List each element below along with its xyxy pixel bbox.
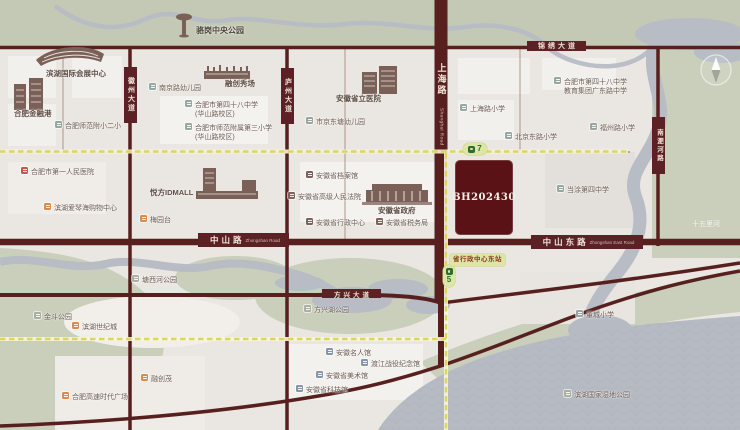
poi-label: 十五里河 xyxy=(692,220,720,229)
poi-label: 合肥市师范附属第三小学(华山路校区) xyxy=(195,124,272,142)
poi-label: 梅园台 xyxy=(150,216,171,225)
poi-fuzhou-rd-primary: 福州路小学 xyxy=(590,124,635,133)
road-name-en: Zhongshan Road xyxy=(245,238,280,243)
poi-label: 金斗公园 xyxy=(44,313,72,322)
museum-icon xyxy=(296,385,303,392)
poi-label: 悦方IDMALL xyxy=(150,188,193,198)
poi-no48-guangdong: 合肥市第四十八中学教育集团广东路中学 xyxy=(554,78,627,96)
road-label-shanghai-en: Shanghai Road xyxy=(436,102,446,152)
road-label-zhongshan-east: 中山东路 Zhongshan East Road xyxy=(531,235,643,249)
metro-logo-icon xyxy=(468,146,475,153)
school-icon xyxy=(185,100,192,107)
metro-logo-icon xyxy=(446,268,453,275)
gov-icon xyxy=(376,218,383,225)
poi-label: 塘西河公园 xyxy=(142,276,177,285)
metro-line7-badge: 7 xyxy=(463,143,487,155)
school-icon xyxy=(306,117,313,124)
park-icon xyxy=(304,305,311,312)
poi-finance-port: 合肥金融港 xyxy=(14,109,52,119)
metro-station-label: 省行政中心东站 xyxy=(450,254,505,266)
shop-icon xyxy=(140,215,147,222)
poi-label: 合肥市第一人民医院 xyxy=(31,168,94,177)
museum-icon xyxy=(361,359,368,366)
poi-rongchuang-show: 融创秀场 xyxy=(225,79,255,89)
map-canvas: 骆岗中央公园滨湖国际会展中心合肥金融港融创秀场南京路幼儿园合肥市第四十八中学(华… xyxy=(0,0,740,430)
road-name-zh: 中山东路 xyxy=(540,236,589,248)
school-icon xyxy=(55,121,62,128)
poi-fangxinghu-park: 方兴湖公园 xyxy=(304,306,349,315)
poi-celebrity-museum: 安徽名人馆 xyxy=(326,349,371,358)
poi-label: 合肥市第四十八中学教育集团广东路中学 xyxy=(564,78,627,96)
poi-prov-admin-center: 安徽省行政中心 xyxy=(306,219,365,228)
road-label-jinxiu: 锦绣大道 xyxy=(527,41,586,51)
poi-shifan-no3-primary: 合肥市师范附属第三小学(华山路校区) xyxy=(185,124,272,142)
poi-first-people-hospital: 合肥市第一人民医院 xyxy=(21,168,94,177)
poi-convention-center: 滨湖国际会展中心 xyxy=(46,69,106,79)
poi-label: 当涂第四中学 xyxy=(567,186,609,195)
poi-prov-government: 安徽省政府 xyxy=(378,206,416,216)
poi-label: 滨湖国家湿地公园 xyxy=(574,391,630,400)
poi-meiyuantai: 梅园台 xyxy=(140,216,171,225)
road-label-huizhou: 徽州大道 xyxy=(124,67,137,123)
poi-luogang-park: 骆岗中央公园 xyxy=(196,26,244,36)
poi-label: 安徽省行政中心 xyxy=(316,219,365,228)
poi-shifan-fuxiao-2: 合肥师范附小二小 xyxy=(55,122,121,131)
poi-label: 方兴湖公园 xyxy=(314,306,349,315)
school-icon xyxy=(554,77,561,84)
road-label-shanghai-zh: 上海路 xyxy=(433,56,449,102)
poi-label: 滨湖国际会展中心 xyxy=(46,69,106,79)
poi-shijicheng: 滨湖世纪城 xyxy=(72,323,117,332)
poi-label: 北京东路小学 xyxy=(515,133,557,142)
poi-label: 董城小学 xyxy=(586,311,614,320)
poi-label: 安徽名人馆 xyxy=(336,349,371,358)
road-name: 锦绣大道 xyxy=(535,41,578,51)
compass-icon xyxy=(701,55,731,85)
poi-jindou-park: 金斗公园 xyxy=(34,313,72,322)
poi-dujiang-memorial: 渡江战役纪念馆 xyxy=(361,360,420,369)
road-label-luzhou: 庐州大道 xyxy=(281,68,294,124)
school-icon xyxy=(505,132,512,139)
poi-art-museum: 安徽省美术馆 xyxy=(316,372,368,381)
poi-label: 融创茂 xyxy=(151,375,172,384)
poi-label: 安徽省高级人民法院 xyxy=(298,193,361,202)
gov-icon xyxy=(306,171,313,178)
road-name-en: Zhongshan East Road xyxy=(590,240,635,245)
poi-gaosu-times-plaza: 合肥高速时代广场 xyxy=(62,393,128,402)
hospital-icon xyxy=(21,167,28,174)
poi-label: 合肥金融港 xyxy=(14,109,52,119)
road-label-zhongshan: 中山路 Zhongshan Road xyxy=(198,233,289,247)
school-icon xyxy=(576,310,583,317)
poi-label: 安徽省立医院 xyxy=(336,94,381,104)
poi-prov-high-court: 安徽省高级人民法院 xyxy=(288,193,361,202)
metro-line-number: 7 xyxy=(477,145,481,153)
poi-beijing-rd-primary: 北京东路小学 xyxy=(505,133,557,142)
school-icon xyxy=(460,104,467,111)
poi-prov-archives: 安徽省档案馆 xyxy=(306,172,358,181)
gov-icon xyxy=(306,218,313,225)
poi-label: 滨湖爱琴海购物中心 xyxy=(54,204,117,213)
poi-idmall: 悦方IDMALL xyxy=(150,188,193,198)
poi-label: 福州路小学 xyxy=(600,124,635,133)
road-name-zh: 中山路 xyxy=(207,234,245,246)
shop-icon xyxy=(44,203,51,210)
poi-wetland-park: 滨湖国家湿地公园 xyxy=(564,391,630,400)
poi-label: 市京东塘幼儿园 xyxy=(316,118,365,127)
poi-shiwuli-river: 十五里河 xyxy=(692,220,720,229)
metro-line5-badge: 5 xyxy=(443,265,455,287)
poi-nanjing-rd-kindergarten: 南京路幼儿园 xyxy=(149,84,201,93)
park-icon xyxy=(132,275,139,282)
school-icon xyxy=(185,123,192,130)
road-label-fangxing: 方兴大道 xyxy=(322,289,381,298)
gov-building-icon xyxy=(362,184,432,205)
poi-label: 合肥市第四十八中学(华山路校区) xyxy=(195,101,258,119)
poi-science-museum: 安徽省科技馆 xyxy=(296,386,348,395)
shop-icon xyxy=(141,374,148,381)
poi-aiqinhai-mall: 滨湖爱琴海购物中心 xyxy=(44,204,117,213)
poi-dangtu-no4-middle: 当涂第四中学 xyxy=(557,186,609,195)
park-icon xyxy=(564,390,571,397)
poi-label: 南京路幼儿园 xyxy=(159,84,201,93)
poi-tangxihe-park: 塘西河公园 xyxy=(132,276,177,285)
poi-label: 安徽省美术馆 xyxy=(326,372,368,381)
poi-dongcheng-primary: 董城小学 xyxy=(576,311,614,320)
poi-rongchuang-mao: 融创茂 xyxy=(141,375,172,384)
poi-prov-tax-bureau: 安徽省税务局 xyxy=(376,219,428,228)
plot-bh202430: BH202430 xyxy=(455,160,513,235)
poi-label: 上海路小学 xyxy=(470,105,505,114)
road-label-nanfeihe: 南淝河路 xyxy=(652,117,665,174)
shop-icon xyxy=(72,322,79,329)
museum-icon xyxy=(316,371,323,378)
poi-label: 合肥高速时代广场 xyxy=(72,393,128,402)
poi-label: 合肥师范附小二小 xyxy=(65,122,121,131)
poi-prov-hospital: 安徽省立医院 xyxy=(336,94,381,104)
poi-label: 滨湖世纪城 xyxy=(82,323,117,332)
poi-label: 安徽省档案馆 xyxy=(316,172,358,181)
poi-shanghai-rd-primary: 上海路小学 xyxy=(460,105,505,114)
school-icon xyxy=(149,83,156,90)
poi-label: 安徽省税务局 xyxy=(386,219,428,228)
school-icon xyxy=(557,185,564,192)
school-icon xyxy=(590,123,597,130)
poi-no48-middle-huashan: 合肥市第四十八中学(华山路校区) xyxy=(185,101,258,119)
shop-icon xyxy=(62,392,69,399)
poi-label: 渡江战役纪念馆 xyxy=(371,360,420,369)
poi-label: 安徽省政府 xyxy=(378,206,416,216)
poi-label: 安徽省科技馆 xyxy=(306,386,348,395)
poi-label: 骆岗中央公园 xyxy=(196,26,244,36)
park-icon xyxy=(34,312,41,319)
museum-icon xyxy=(326,348,333,355)
road-name: 方兴大道 xyxy=(331,289,372,299)
poi-city-kindergarten: 市京东塘幼儿园 xyxy=(306,118,365,127)
poi-label: 融创秀场 xyxy=(225,79,255,89)
metro-line-number: 5 xyxy=(447,276,451,284)
gov-icon xyxy=(288,192,295,199)
